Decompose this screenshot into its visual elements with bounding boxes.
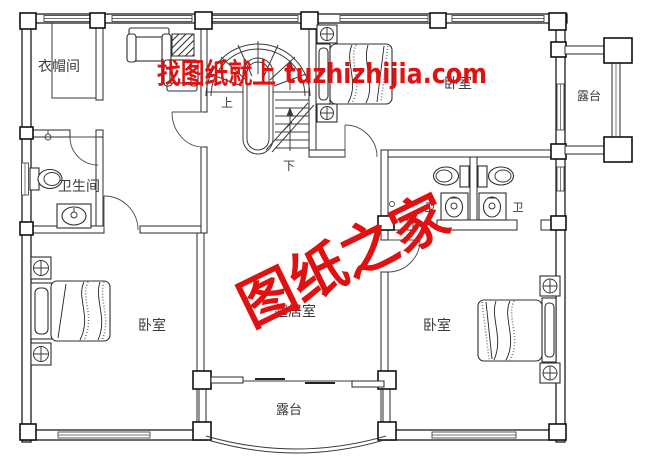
window-top-stairs [212, 16, 298, 22]
floor-plan-svg: 衣帽间 卫生间 卧室 起居室 卧室 卧室 露台 露台 上 下 卫 卫 找图纸就上… [0, 0, 650, 468]
toilet-right [478, 166, 514, 187]
washbasin [57, 204, 91, 228]
window-top-bedroom-b [452, 16, 544, 22]
watermark-top: 找图纸就上 tuzhizhijia.com [157, 57, 487, 90]
floor-plan-page: 衣帽间 卫生间 卧室 起居室 卧室 卧室 露台 露台 上 下 卫 卫 找图纸就上… [0, 0, 650, 468]
window-top-hall [112, 16, 192, 22]
window-bottom-left-bedroom [58, 432, 150, 438]
window-top-bedroom-a [340, 16, 428, 22]
room-label-cloakroom: 衣帽间 [38, 59, 80, 75]
room-label-bedroom-bottom-right: 卧室 [423, 317, 451, 334]
window-top-cloakroom [44, 16, 90, 22]
window-bottom-right-bedroom [432, 432, 516, 438]
stairs-up-label: 上 [221, 96, 233, 110]
pillow [35, 288, 48, 334]
room-label-terrace-right: 露台 [577, 88, 601, 103]
window-right-bath [557, 167, 564, 191]
room-label-terrace-bottom: 露台 [276, 403, 302, 418]
window-left-bathroom [22, 163, 29, 195]
toilet-left [434, 166, 470, 187]
side-table-hatched [172, 34, 194, 56]
room-label-bathroom: 卫生间 [58, 179, 100, 195]
window-right-terrace-door [557, 84, 564, 130]
wc-right-label: 卫 [513, 201, 524, 214]
stairs-down-label: 下 [283, 159, 295, 173]
sink-right [479, 193, 506, 220]
pillow [545, 303, 554, 357]
room-label-bedroom-left: 卧室 [138, 317, 166, 334]
